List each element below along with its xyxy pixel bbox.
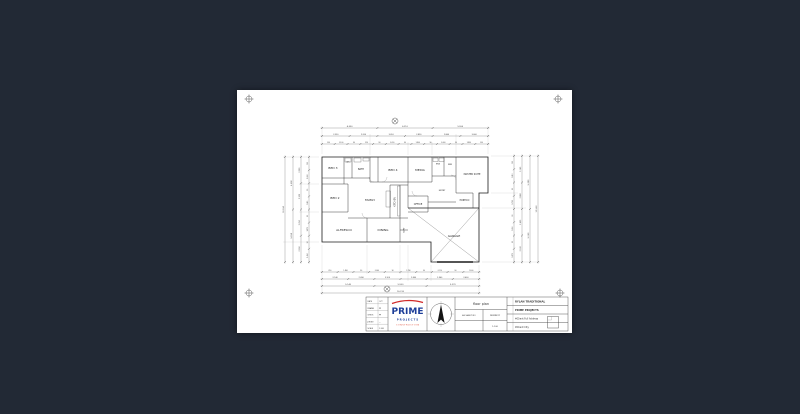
svg-text:90: 90 — [455, 142, 457, 144]
svg-text:2,090: 2,090 — [359, 277, 365, 279]
svg-text:1,800: 1,800 — [416, 142, 420, 144]
svg-text:250: 250 — [480, 142, 483, 144]
grid-bubble-bottom — [384, 286, 390, 292]
room-label-family: FAMILY — [365, 198, 375, 202]
sheet-no-label: A3 SHEET NO — [462, 314, 476, 317]
svg-text:5,900: 5,900 — [398, 284, 404, 286]
svg-text:90: 90 — [423, 270, 425, 272]
registration-mark-top-right — [554, 95, 563, 104]
room-label-ldry: LDRY — [404, 227, 406, 233]
logo-prime-text: PRIME — [392, 307, 424, 317]
title-block: DATE OCT DRAWN PP CHECK PP JOB NO — SCAL… — [366, 297, 568, 331]
project-name: RYLAN TRADITIONAL — [515, 300, 545, 304]
svg-text:2,340: 2,340 — [307, 201, 309, 205]
dim-row-bottom-4: 16,310 — [321, 291, 481, 294]
sheet-date: DD/MM/YY — [490, 315, 501, 317]
svg-text:5,140: 5,140 — [345, 284, 351, 286]
registration-mark-top-left — [245, 95, 254, 104]
svg-text:3,000: 3,000 — [472, 134, 478, 136]
client-address: #Client Full Address — [515, 318, 539, 321]
info-value-4: — — [379, 321, 381, 323]
svg-text:2,350: 2,350 — [333, 134, 339, 136]
room-label-dining: DINING — [378, 228, 390, 232]
logo-construction-text: C O N S T R U C T I O N — [396, 325, 420, 327]
client-city: #Client City — [515, 326, 529, 329]
svg-text:2,860: 2,860 — [520, 192, 522, 198]
project-block: RYLAN TRADITIONAL PRIME PROJECTS #Client… — [507, 297, 568, 331]
svg-text:90: 90 — [353, 142, 355, 144]
dim-row-bottom-1: 2501,890902,000901,790902,110901,500 — [321, 270, 481, 273]
dim-col-left-3: 5,5005,050 — [291, 156, 294, 264]
svg-text:1,950: 1,950 — [307, 253, 309, 257]
dim-row-top-3: 2502,10090910902,010901,800902,000901,89… — [321, 142, 490, 145]
svg-text:250: 250 — [328, 270, 331, 272]
room-label-office: OFFICE — [414, 203, 423, 206]
svg-text:90: 90 — [512, 241, 514, 243]
room-label-wir: WIR — [448, 164, 453, 166]
svg-text:1,870: 1,870 — [307, 227, 309, 231]
svg-text:2,250: 2,250 — [299, 219, 301, 225]
info-label-2: DRAWN — [368, 307, 375, 310]
garage-diagonals — [408, 208, 479, 262]
dim-row-top-2: 2,3502,2003,0102,8902,8603,000 — [321, 134, 490, 137]
grid-bubble-top — [392, 118, 398, 124]
svg-text:90: 90 — [307, 189, 309, 191]
dim-col-left-4: 10,550 — [283, 156, 286, 264]
dim-row-bottom-2: 2,1402,0903,1002,8002,9602,600 — [321, 277, 481, 280]
svg-text:2,350: 2,350 — [512, 227, 514, 231]
svg-text:2,010: 2,010 — [512, 174, 514, 178]
svg-text:90: 90 — [404, 142, 406, 144]
dim-col-right-3: 5,3005,250 — [528, 155, 531, 264]
room-labels: BED 3 WC BATH BED 4 MEDIA ENS WIR MASTER… — [328, 162, 481, 239]
logo-swoosh-icon — [392, 300, 423, 303]
info-label-5: SCALE — [368, 327, 373, 330]
svg-text:2,010: 2,010 — [390, 142, 394, 144]
room-label-kitchen: KITCHEN — [394, 197, 397, 207]
svg-text:2,860: 2,860 — [444, 134, 450, 136]
dim-col-right-4: 10,550 — [536, 155, 539, 264]
svg-text:2,110: 2,110 — [438, 270, 442, 272]
dim-row-bottom-3: 5,1405,9005,270 — [321, 284, 481, 287]
svg-text:3,010: 3,010 — [389, 134, 395, 136]
dim-col-left-2: 3,2802,9202,2502,050 — [299, 156, 302, 264]
title-block-info-table: DATE OCT DRAWN PP CHECK PP JOB NO — SCAL… — [366, 297, 388, 331]
svg-text:3,280: 3,280 — [299, 167, 301, 173]
room-label-media: MEDIA — [415, 168, 426, 172]
room-label-master-suite: MASTER SUITE — [464, 173, 481, 176]
prime-projects-logo: PRIME P R O J E C T S C O N S T R U C T … — [392, 300, 424, 326]
svg-text:6,210: 6,210 — [402, 126, 408, 128]
svg-text:2,400: 2,400 — [520, 219, 522, 225]
room-label-bed3: BED 3 — [328, 166, 337, 170]
room-label-bath: BATH — [358, 168, 364, 171]
svg-text:5,250: 5,250 — [528, 232, 530, 238]
svg-text:1,930: 1,930 — [307, 174, 309, 178]
svg-text:1,790: 1,790 — [406, 270, 410, 272]
svg-text:250: 250 — [307, 162, 309, 165]
info-value-1: OCT — [379, 301, 384, 303]
svg-text:1,890: 1,890 — [467, 142, 471, 144]
svg-text:3,100: 3,100 — [385, 277, 391, 279]
svg-text:90: 90 — [307, 241, 309, 243]
svg-text:16,310: 16,310 — [397, 291, 405, 293]
svg-text:5,300: 5,300 — [528, 179, 530, 185]
svg-text:4,550: 4,550 — [347, 126, 353, 128]
svg-text:90: 90 — [379, 142, 381, 144]
svg-text:250: 250 — [512, 161, 514, 164]
revision-box — [548, 317, 559, 329]
info-value-2: PP — [379, 308, 381, 310]
room-label-wc: WC — [346, 162, 350, 164]
svg-text:2,140: 2,140 — [333, 277, 339, 279]
svg-text:5,550: 5,550 — [457, 126, 463, 128]
info-value-3: PP — [379, 315, 381, 317]
fixtures — [345, 158, 456, 218]
dim-col-right-2: 3,1402,8602,4002,100 — [520, 155, 523, 264]
svg-text:90: 90 — [454, 270, 456, 272]
svg-text:2,890: 2,890 — [416, 134, 422, 136]
info-label-3: CHECK — [368, 315, 375, 317]
viewer-background: { "page": { "background": "#222935", "sh… — [0, 0, 800, 414]
room-label-garage: GARAGE — [448, 234, 461, 238]
room-label-ens: ENS — [436, 164, 441, 166]
svg-text:3,140: 3,140 — [520, 166, 522, 172]
room-label-entry: ENTRY — [439, 190, 446, 192]
svg-text:2,200: 2,200 — [361, 134, 367, 136]
svg-text:250: 250 — [327, 142, 330, 144]
svg-text:90: 90 — [360, 270, 362, 272]
svg-text:1,500: 1,500 — [469, 270, 473, 272]
sheet-title-cells: floor plan A3 SHEET NO DD/MM/YY 1:100 — [455, 302, 507, 331]
svg-text:10,550: 10,550 — [283, 205, 285, 213]
svg-text:2,920: 2,920 — [299, 193, 301, 199]
dim-row-top-1: 4,5506,2105,550 — [321, 126, 490, 129]
svg-text:90: 90 — [307, 215, 309, 217]
svg-text:2,050: 2,050 — [299, 245, 301, 251]
svg-text:90: 90 — [512, 188, 514, 190]
room-label-portico: PORTICO — [460, 199, 470, 202]
dim-col-right-1: 2502,010901,750902,350901,870 — [512, 155, 515, 264]
svg-text:90: 90 — [392, 270, 394, 272]
room-label-bed4: BED 4 — [388, 168, 397, 172]
svg-text:2,000: 2,000 — [375, 270, 379, 272]
north-arrow-icon — [428, 301, 454, 327]
room-label-bed2: BED 2 — [330, 196, 339, 200]
svg-text:2,100: 2,100 — [520, 245, 522, 251]
info-value-5: 1:100 — [379, 328, 384, 330]
info-label-4: JOB NO — [367, 321, 375, 323]
svg-text:910: 910 — [365, 142, 368, 144]
svg-text:90: 90 — [430, 142, 432, 144]
svg-text:2,600: 2,600 — [463, 277, 469, 279]
svg-text:10,550: 10,550 — [536, 205, 538, 213]
svg-text:2,000: 2,000 — [441, 142, 445, 144]
floor-plan-drawing: 4,5506,2105,550 2,3502,2003,0102,8902,86… — [237, 90, 572, 333]
info-label-1: DATE — [368, 300, 372, 303]
svg-text:2,100: 2,100 — [339, 142, 343, 144]
room-label-alfresco: ALFRESCO — [336, 228, 352, 232]
svg-text:90: 90 — [512, 215, 514, 217]
svg-text:1,890: 1,890 — [343, 270, 347, 272]
registration-mark-bottom-right — [556, 289, 565, 298]
svg-text:1,750: 1,750 — [512, 200, 514, 204]
dim-col-left-1: 2501,930902,340901,870901,950 — [307, 156, 310, 264]
svg-text:5,270: 5,270 — [450, 284, 456, 286]
registration-mark-bottom-left — [245, 289, 254, 298]
svg-text:2,960: 2,960 — [437, 277, 443, 279]
drawing-sheet: 4,5506,2105,550 2,3502,2003,0102,8902,86… — [237, 90, 572, 333]
sheet-title: floor plan — [473, 302, 489, 306]
sheet-scale: 1:100 — [492, 326, 498, 328]
builder-name: PRIME PROJECTS — [515, 308, 539, 312]
svg-text:5,050: 5,050 — [291, 232, 293, 238]
logo-projects-text: P R O J E C T S — [397, 318, 419, 322]
svg-text:2,800: 2,800 — [411, 277, 417, 279]
svg-text:1,870: 1,870 — [512, 253, 514, 257]
svg-text:5,500: 5,500 — [291, 180, 293, 186]
